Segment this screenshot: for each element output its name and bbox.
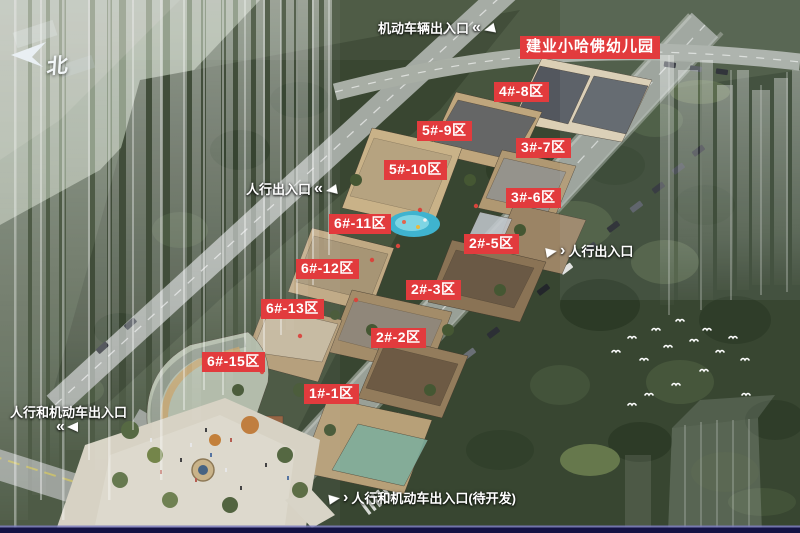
north-label: 北 (46, 49, 69, 81)
entrance-pedestrian-vehicle-bottom: › 人行和机动车出入口(待开发) (329, 492, 516, 505)
site-rendering-art (0, 0, 800, 533)
zone-badge-4-8: 4#-8区 (494, 82, 549, 102)
entrance-pedestrian-left: 人行出入口 « (246, 183, 337, 196)
zone-badge-2-3: 2#-3区 (406, 280, 461, 300)
zone-badge-2-2: 2#-2区 (371, 328, 426, 348)
zone-badge-3-7: 3#-7区 (516, 138, 571, 158)
zone-badge-1-1: 1#-1区 (304, 384, 359, 404)
zone-badge-5-9: 5#-9区 (417, 121, 472, 141)
zone-badge-6-12: 6#-12区 (296, 259, 359, 279)
chevron-right-icon: › (343, 492, 348, 505)
arrow-left-icon (483, 22, 496, 34)
arrow-right-icon (545, 246, 558, 258)
entrance-vehicle-top-text: 机动车辆出入口 (378, 22, 469, 35)
entrance-pedestrian-right: › 人行出入口 (546, 245, 633, 258)
arrow-left-icon (325, 184, 338, 196)
kindergarten-banner: 建业小哈佛幼儿园 (520, 36, 660, 59)
chevron-right-icon: › (560, 245, 565, 258)
arrow-left-icon (67, 422, 78, 432)
entrance-pedestrian-right-text: 人行出入口 (568, 245, 633, 258)
north-arrow-icon (10, 42, 48, 70)
entrance-pedestrian-vehicle-bottom-text: 人行和机动车出入口(待开发) (351, 492, 516, 505)
zone-badge-6-11: 6#-11区 (329, 214, 391, 234)
entrance-pedestrian-vehicle-left-text: 人行和机动车出入口 (10, 406, 127, 419)
zone-badge-3-6: 3#-6区 (506, 188, 561, 208)
zone-badge-6-15: 6#-15区 (202, 352, 265, 372)
entrance-vehicle-top: 机动车辆出入口 « (378, 22, 495, 35)
entrance-pedestrian-vehicle-left: 人行和机动车出入口 « (10, 406, 127, 434)
chevron-double-left-icon: « (472, 22, 481, 35)
bottom-bar (0, 526, 800, 533)
zone-badge-5-10: 5#-10区 (384, 160, 447, 180)
zone-badge-6-13: 6#-13区 (261, 299, 324, 319)
chevron-double-left-icon: « (56, 421, 65, 434)
masterplan-rendering: 北 建业小哈佛幼儿园 4#-8区 5#-9区 3#-7区 5#-10区 3#-6… (0, 0, 800, 533)
arrow-right-icon (328, 493, 340, 504)
arrow-row: « (56, 421, 78, 434)
chevron-double-left-icon: « (314, 183, 323, 196)
entrance-pedestrian-left-text: 人行出入口 (246, 183, 311, 196)
zone-badge-2-5: 2#-5区 (464, 234, 519, 254)
